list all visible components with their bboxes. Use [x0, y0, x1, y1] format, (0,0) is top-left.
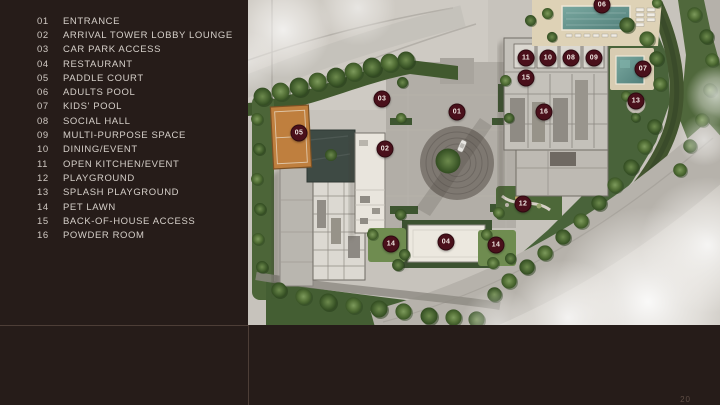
legend-item-number: 14 [37, 202, 63, 213]
legend-item-label: SOCIAL HALL [63, 116, 131, 127]
legend-item: 03 CAR PARK ACCESS [0, 43, 248, 57]
divider-horizontal [0, 325, 248, 326]
legend-item: 08 SOCIAL HALL [0, 114, 248, 128]
plan-marker-13: 13 [628, 93, 645, 110]
legend-item-label: KIDS' POOL [63, 101, 122, 112]
divider-vertical [248, 325, 249, 405]
legend-item-label: RESTAURANT [63, 59, 133, 70]
legend-item-number: 11 [37, 159, 63, 170]
legend-item: 04 RESTAURANT [0, 57, 248, 71]
legend-item-number: 02 [37, 30, 63, 41]
legend-item-label: PADDLE COURT [63, 73, 144, 84]
plan-marker-15: 15 [518, 70, 535, 87]
plan-marker-10: 10 [540, 50, 557, 67]
legend-item: 16 POWDER ROOM [0, 228, 248, 242]
legend-item-label: MULTI-PURPOSE SPACE [63, 130, 186, 141]
site-plan: 0611100809071513160301050212140414 [248, 0, 720, 325]
legend-item: 02 ARRIVAL TOWER LOBBY LOUNGE [0, 28, 248, 42]
legend-item: 14 PET LAWN [0, 200, 248, 214]
legend-item-number: 10 [37, 144, 63, 155]
legend-item-number: 03 [37, 44, 63, 55]
legend-item: 06 ADULTS POOL [0, 85, 248, 99]
legend-item-number: 05 [37, 73, 63, 84]
legend-item-number: 13 [37, 187, 63, 198]
legend: 01 ENTRANCE 02 ARRIVAL TOWER LOBBY LOUNG… [0, 14, 248, 243]
page-number: 20 [680, 395, 691, 404]
legend-item-label: PLAYGROUND [63, 173, 135, 184]
plan-marker-16: 16 [536, 104, 553, 121]
plan-marker-12: 12 [515, 196, 532, 213]
legend-item-number: 12 [37, 173, 63, 184]
plan-marker-01: 01 [449, 104, 466, 121]
plan-marker-04: 04 [438, 234, 455, 251]
legend-item-label: DINING/EVENT [63, 144, 138, 155]
legend-item-label: OPEN KITCHEN/EVENT [63, 159, 179, 170]
legend-item-number: 04 [37, 59, 63, 70]
plan-markers: 0611100809071513160301050212140414 [248, 0, 720, 325]
legend-item-label: CAR PARK ACCESS [63, 44, 161, 55]
plan-marker-14: 14 [488, 237, 505, 254]
legend-item-label: PET LAWN [63, 202, 116, 213]
legend-item: 13 SPLASH PLAYGROUND [0, 186, 248, 200]
plan-marker-07: 07 [635, 61, 652, 78]
legend-item: 09 MULTI-PURPOSE SPACE [0, 128, 248, 142]
legend-item-number: 09 [37, 130, 63, 141]
legend-item: 07 KIDS' POOL [0, 100, 248, 114]
legend-item-label: SPLASH PLAYGROUND [63, 187, 179, 198]
legend-item-label: ADULTS POOL [63, 87, 135, 98]
legend-item: 05 PADDLE COURT [0, 71, 248, 85]
legend-item-number: 07 [37, 101, 63, 112]
legend-item: 01 ENTRANCE [0, 14, 248, 28]
legend-item-label: POWDER ROOM [63, 230, 145, 241]
plan-marker-14: 14 [383, 236, 400, 253]
legend-item: 10 DINING/EVENT [0, 143, 248, 157]
legend-item-label: ENTRANCE [63, 16, 120, 27]
plan-marker-02: 02 [377, 141, 394, 158]
legend-item: 15 BACK-OF-HOUSE ACCESS [0, 214, 248, 228]
legend-item-label: BACK-OF-HOUSE ACCESS [63, 216, 195, 227]
plan-marker-09: 09 [586, 50, 603, 67]
legend-item-number: 06 [37, 87, 63, 98]
plan-marker-05: 05 [291, 125, 308, 142]
plan-marker-06: 06 [594, 0, 611, 14]
plan-marker-08: 08 [563, 50, 580, 67]
legend-item: 11 OPEN KITCHEN/EVENT [0, 157, 248, 171]
legend-item: 12 PLAYGROUND [0, 171, 248, 185]
legend-item-number: 01 [37, 16, 63, 27]
legend-item-label: ARRIVAL TOWER LOBBY LOUNGE [63, 30, 233, 41]
legend-item-number: 16 [37, 230, 63, 241]
plan-marker-11: 11 [518, 50, 535, 67]
plan-marker-03: 03 [374, 91, 391, 108]
legend-item-number: 15 [37, 216, 63, 227]
legend-item-number: 08 [37, 116, 63, 127]
